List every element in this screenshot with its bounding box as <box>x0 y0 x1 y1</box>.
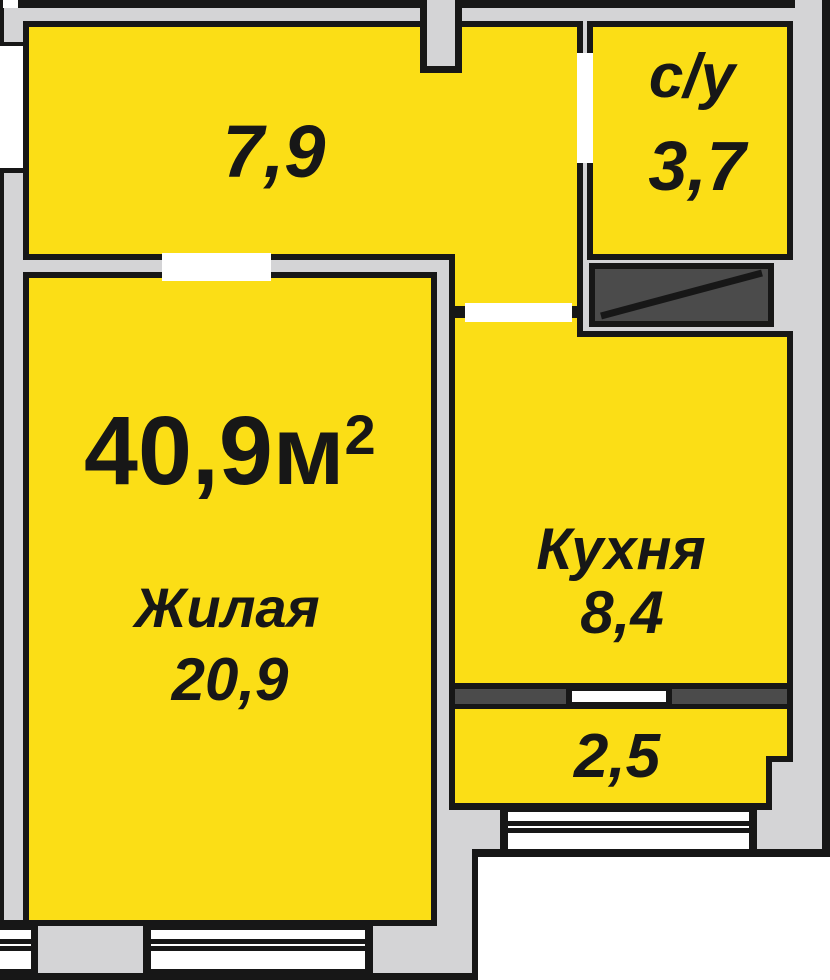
kitchen-area-label: 8,4 <box>580 579 663 646</box>
balcony-door-icon <box>572 691 666 702</box>
bathroom-area-label: 3,7 <box>648 127 748 205</box>
hallway-area-label: 7,9 <box>223 110 326 193</box>
bathroom-name-label: с/у <box>649 42 739 111</box>
outer-wall-left-upper <box>0 8 4 46</box>
living-area-label: 20,9 <box>171 646 289 713</box>
bathroom-door-icon <box>577 53 593 163</box>
outer-wall-right <box>822 0 830 857</box>
floor-plan-page: 7,9 с/у 3,7 40,9м2 Жилая 20,9 Кухня 8,4 … <box>0 0 830 980</box>
outer-wall-left-lower <box>0 173 4 980</box>
bottom-left-window-line1 <box>0 939 31 944</box>
living-name-label: Жилая <box>131 576 319 639</box>
top-wall-stub <box>427 0 455 66</box>
living-door-icon <box>162 253 271 281</box>
outer-wall-top <box>0 0 795 8</box>
left-window-icon <box>0 46 23 168</box>
kitchen-door-icon <box>465 303 572 322</box>
bottom-left-window-line2 <box>0 946 31 951</box>
balcony-window-line1 <box>508 821 749 826</box>
living-window-line2 <box>151 946 365 951</box>
balcony-window-line2 <box>508 828 749 833</box>
living-window-line1 <box>151 939 365 944</box>
total-area-label: 40,9м2 <box>84 396 376 505</box>
floor-plan: 7,9 с/у 3,7 40,9м2 Жилая 20,9 Кухня 8,4 … <box>0 0 830 980</box>
outer-wall-step <box>472 849 478 980</box>
balcony-area-label: 2,5 <box>573 722 662 791</box>
kitchen-name-label: Кухня <box>536 517 705 582</box>
outer-wall-top-notch <box>3 0 18 8</box>
